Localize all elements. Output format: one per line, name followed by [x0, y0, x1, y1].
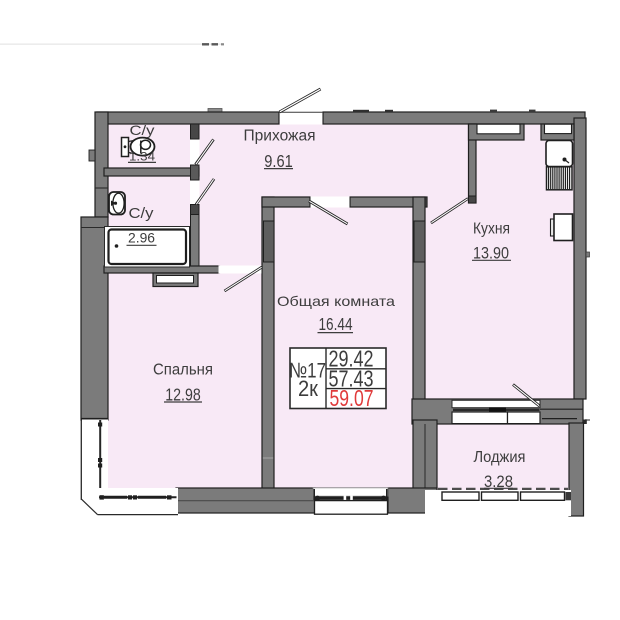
svg-text:Общая комната: Общая комната [277, 293, 395, 309]
svg-text:13.90: 13.90 [473, 243, 509, 262]
svg-text:С/у: С/у [130, 122, 155, 138]
svg-text:Прихожая: Прихожая [244, 127, 316, 144]
svg-text:С/у: С/у [129, 205, 155, 222]
svg-text:59.07: 59.07 [330, 385, 374, 411]
svg-text:2.96: 2.96 [128, 230, 155, 246]
svg-text:2к: 2к [298, 376, 318, 401]
svg-text:Кухня: Кухня [473, 221, 510, 238]
svg-text:Спальня: Спальня [153, 362, 213, 379]
svg-text:Лоджия: Лоджия [474, 449, 526, 466]
svg-text:16.44: 16.44 [319, 314, 353, 334]
